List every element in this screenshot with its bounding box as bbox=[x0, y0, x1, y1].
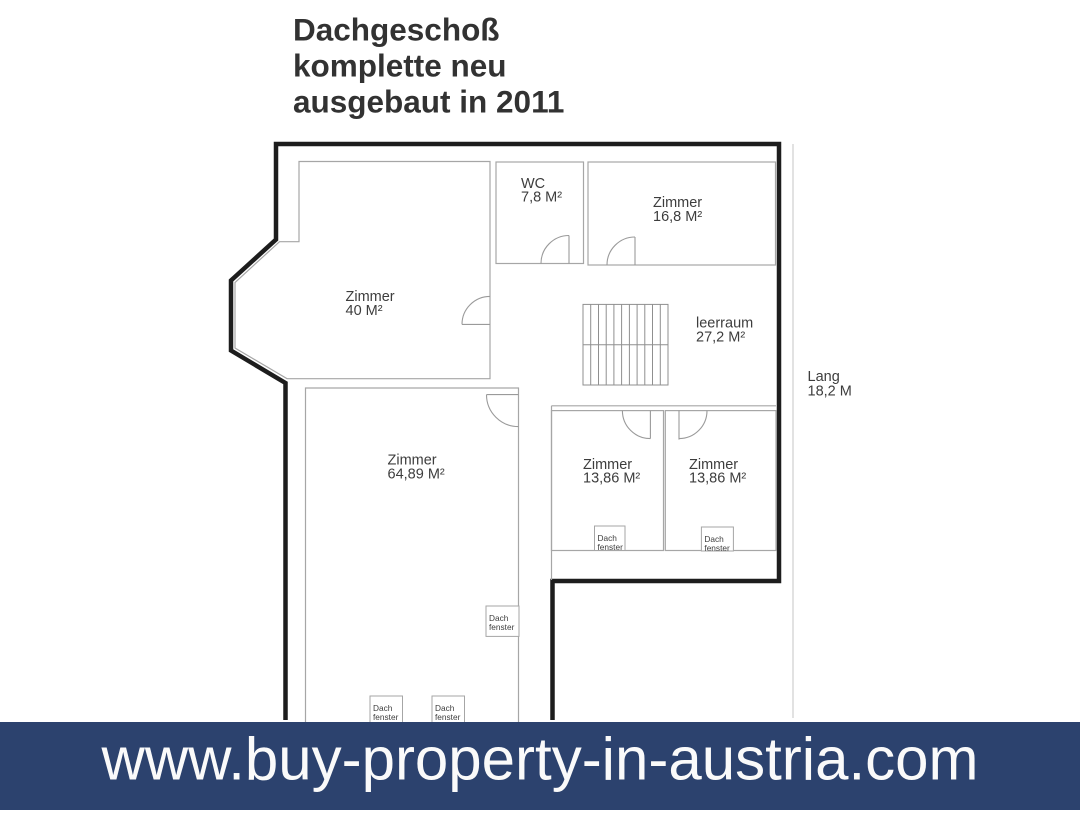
svg-text:13,86 M²: 13,86 M² bbox=[689, 471, 746, 487]
svg-text:13,86 M²: 13,86 M² bbox=[583, 471, 640, 487]
svg-text:www.buy-property-in-austria.co: www.buy-property-in-austria.com bbox=[101, 726, 979, 793]
svg-text:7,8 M²: 7,8 M² bbox=[521, 190, 562, 206]
svg-text:16,8 M²: 16,8 M² bbox=[653, 209, 702, 225]
svg-text:40 M²: 40 M² bbox=[346, 303, 383, 319]
svg-text:fenster: fenster bbox=[489, 622, 515, 632]
svg-text:ausgebaut in 2011: ausgebaut in 2011 bbox=[293, 84, 564, 120]
svg-text:64,89 M²: 64,89 M² bbox=[388, 467, 445, 483]
svg-text:komplette neu: komplette neu bbox=[293, 48, 507, 84]
svg-text:fenster: fenster bbox=[373, 712, 399, 722]
svg-text:fenster: fenster bbox=[598, 542, 624, 552]
svg-text:Dachgeschoß: Dachgeschoß bbox=[293, 12, 500, 48]
svg-text:fenster: fenster bbox=[704, 543, 730, 553]
svg-text:27,2 M²: 27,2 M² bbox=[696, 330, 745, 346]
svg-text:fenster: fenster bbox=[435, 712, 461, 722]
svg-text:18,2 M: 18,2 M bbox=[808, 384, 852, 400]
